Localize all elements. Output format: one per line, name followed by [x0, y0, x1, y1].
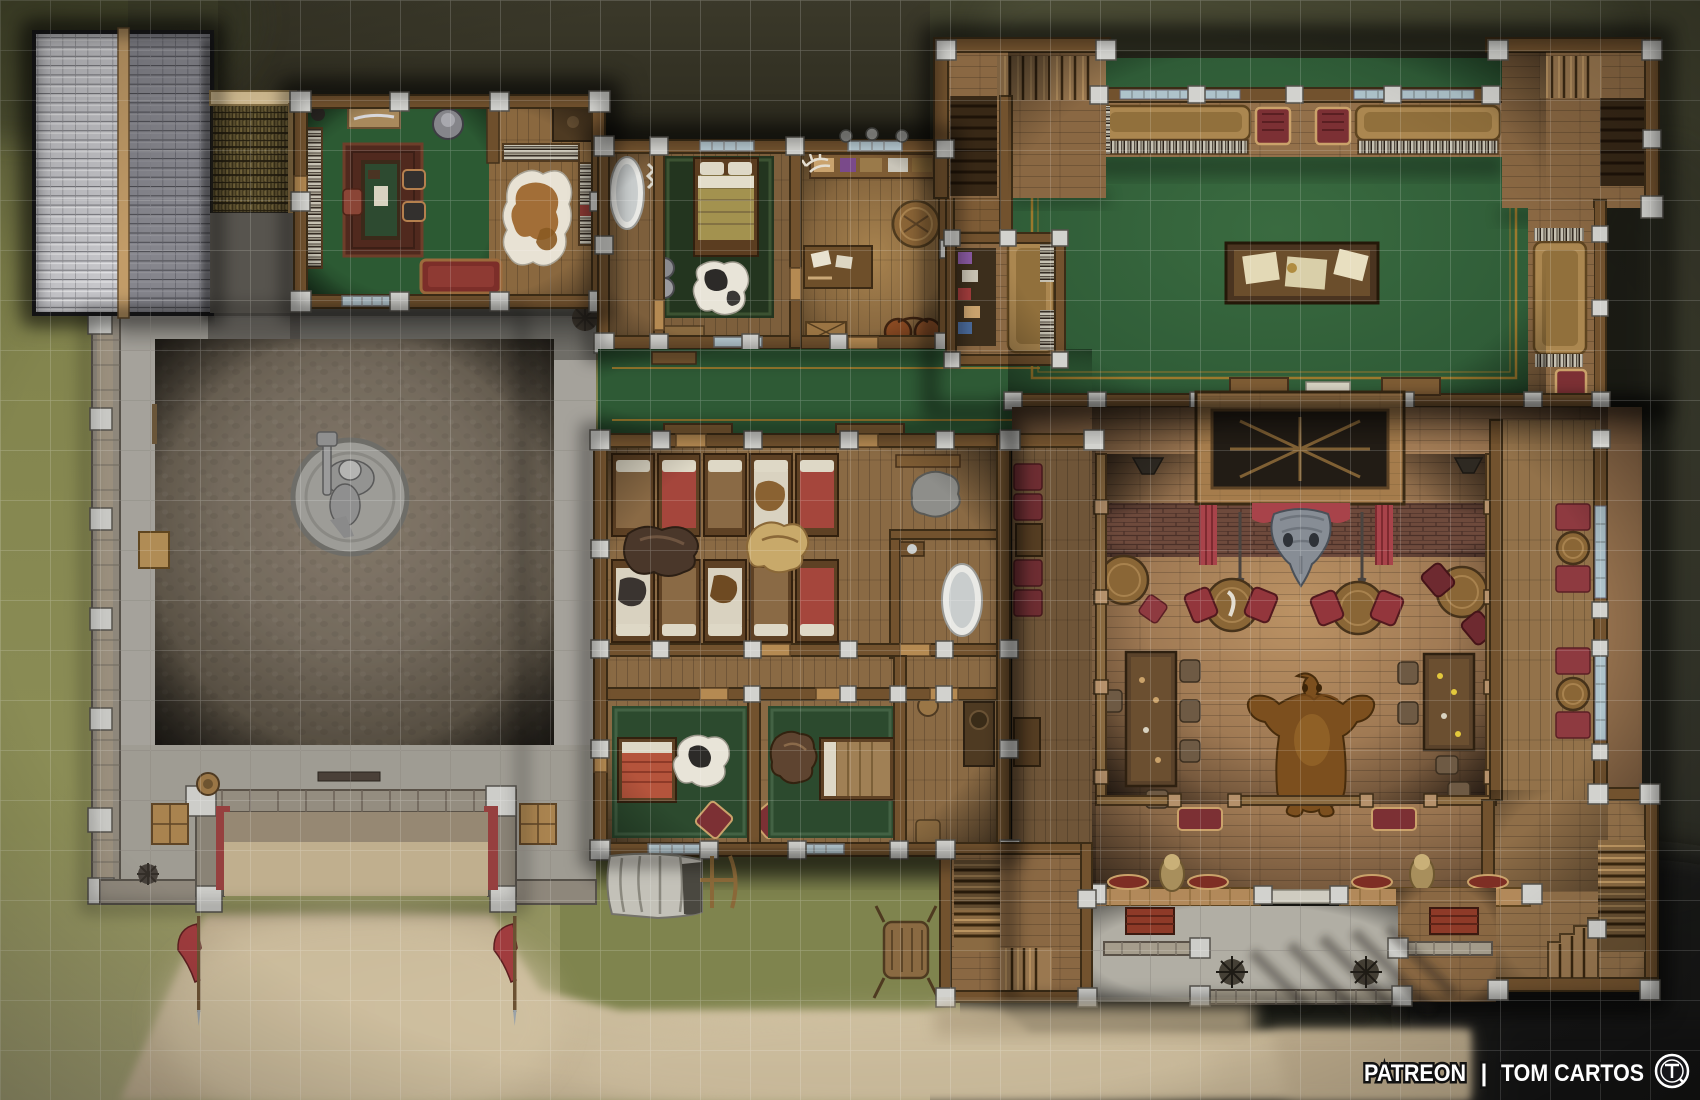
svg-text:TOM CARTOS: TOM CARTOS [1501, 1060, 1644, 1087]
svg-text:PATREON: PATREON [1364, 1060, 1466, 1087]
svg-text:|: | [1481, 1060, 1488, 1087]
